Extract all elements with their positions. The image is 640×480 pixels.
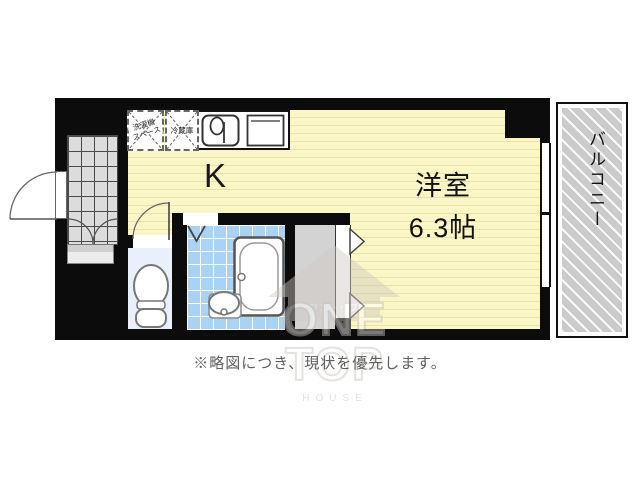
closet-floor [295,225,335,329]
main-room-name: 洋室 [415,171,471,201]
disclaimer-caption: ※略図につき、現状を優先します。 [0,352,640,373]
entrance-tile-floor [67,135,118,245]
bathroom-tile-floor [187,225,285,330]
bathroom-door-opening [183,213,218,225]
wall-toilet-bath-divider [172,213,187,330]
toilet-room-floor [128,248,172,329]
wall-bottom [55,329,550,340]
balcony-label: バルコニー [583,130,608,320]
main-room-size: 6.3帖 [409,213,478,243]
wall-bath-top [218,213,295,225]
kitchen-label: K [204,157,226,195]
wall-right-lower [540,287,550,329]
entrance-door-arc [10,172,57,219]
wall-closet-top [295,213,350,225]
balcony-window [540,143,551,287]
floorplan-canvas: バルコニー 洗濯機 スペース 冷蔵庫 [0,0,640,480]
window-meeting-rail [540,212,551,215]
watermark-word-house: HOUSE [262,393,408,404]
entrance-step-lower [67,252,114,264]
wall-closet-track-stub [335,318,351,330]
kitchen-counter [196,110,290,150]
main-room-label: 洋室 6.3帖 [388,166,498,250]
wall-top [55,98,550,110]
fridge-space-label: 冷蔵庫 [167,127,197,136]
wall-right-upper [540,110,550,143]
entrance-door-opening [55,171,67,219]
wall-bath-closet-divider [285,213,295,330]
washer-space-label: 洗濯機 スペース [127,116,164,143]
closet-door-track [335,225,351,318]
washer-space-box: 洗濯機 スペース [127,110,164,151]
fridge-space-box: 冷蔵庫 [165,110,199,151]
toilet-door-opening [133,235,172,248]
